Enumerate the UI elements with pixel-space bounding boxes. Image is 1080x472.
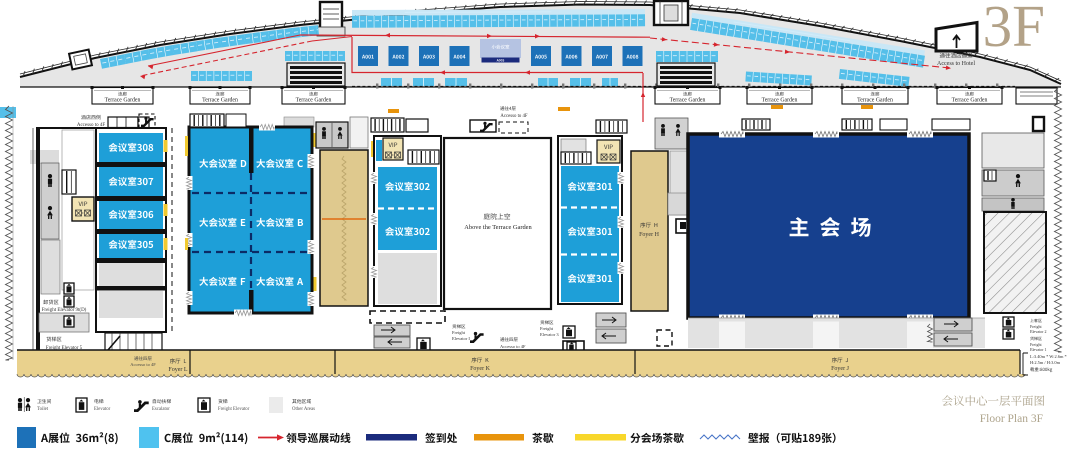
svg-text:Accesso to 4F: Accesso to 4F <box>500 344 526 349</box>
svg-text:Foyer J: Foyer J <box>831 366 849 372</box>
svg-text:Freight Elevator: Freight Elevator <box>218 407 250 412</box>
svg-text:Terrace Garden: Terrace Garden <box>670 98 706 104</box>
svg-text:Accesso to 4F: Accesso to 4F <box>500 114 528 119</box>
svg-text:Elevator 1: Elevator 1 <box>1030 347 1047 352</box>
svg-text:Terrace Garden: Terrace Garden <box>952 98 988 104</box>
svg-text:Foyer L: Foyer L <box>168 367 187 373</box>
svg-text:Elevator: Elevator <box>94 407 111 412</box>
svg-text:Foyer K: Foyer K <box>470 366 490 372</box>
svg-text:Elevator 2: Elevator 2 <box>1030 329 1047 334</box>
svg-text:Freight Elevator 9t(D): Freight Elevator 9t(D) <box>42 308 87 313</box>
svg-text:Escalator: Escalator <box>152 407 170 412</box>
svg-text:Toilet: Toilet <box>37 407 49 412</box>
svg-text:Freight: Freight <box>540 326 554 331</box>
svg-text:Foyer H: Foyer H <box>639 232 659 238</box>
svg-text:Elevator 3: Elevator 3 <box>540 332 559 337</box>
svg-text:L:3.40m * W:2.6m *: L:3.40m * W:2.6m * <box>1030 354 1067 359</box>
svg-text:Terrace Garden: Terrace Garden <box>857 98 893 104</box>
svg-text:Terrace Garden: Terrace Garden <box>105 98 141 104</box>
svg-text:Terrace Garden: Terrace Garden <box>762 98 798 104</box>
svg-text:Other Areas: Other Areas <box>292 407 315 412</box>
svg-text:Access to Hotel: Access to Hotel <box>937 61 975 67</box>
svg-text:Accesso to 4F: Accesso to 4F <box>130 362 156 367</box>
svg-text:Freight: Freight <box>452 330 466 335</box>
svg-text:Floor Plan 3F: Floor Plan 3F <box>980 413 1043 425</box>
svg-text:3F: 3F <box>983 0 1045 59</box>
svg-text:Elevator I: Elevator I <box>452 336 470 341</box>
svg-text:Terrace Garden: Terrace Garden <box>202 98 238 104</box>
svg-text:H:2.5m / H:3.0m: H:2.5m / H:3.0m <box>1030 360 1061 365</box>
svg-text:Terrace Garden: Terrace Garden <box>296 98 332 104</box>
svg-text:Above the Terrace Garden: Above the Terrace Garden <box>464 224 532 231</box>
